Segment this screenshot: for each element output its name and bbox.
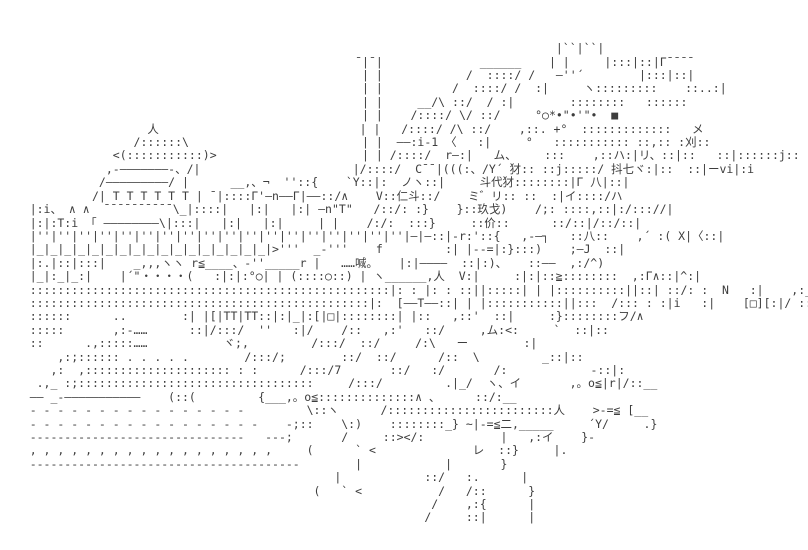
ascii-art-canvas: |``|``| ¯|¯| ______ | | |:::|::|Γ¯¯¯¯ | …: [0, 0, 808, 550]
ascii-art: |``|``| ¯|¯| ______ | | |:::|::|Γ¯¯¯¯ | …: [2, 2, 808, 538]
